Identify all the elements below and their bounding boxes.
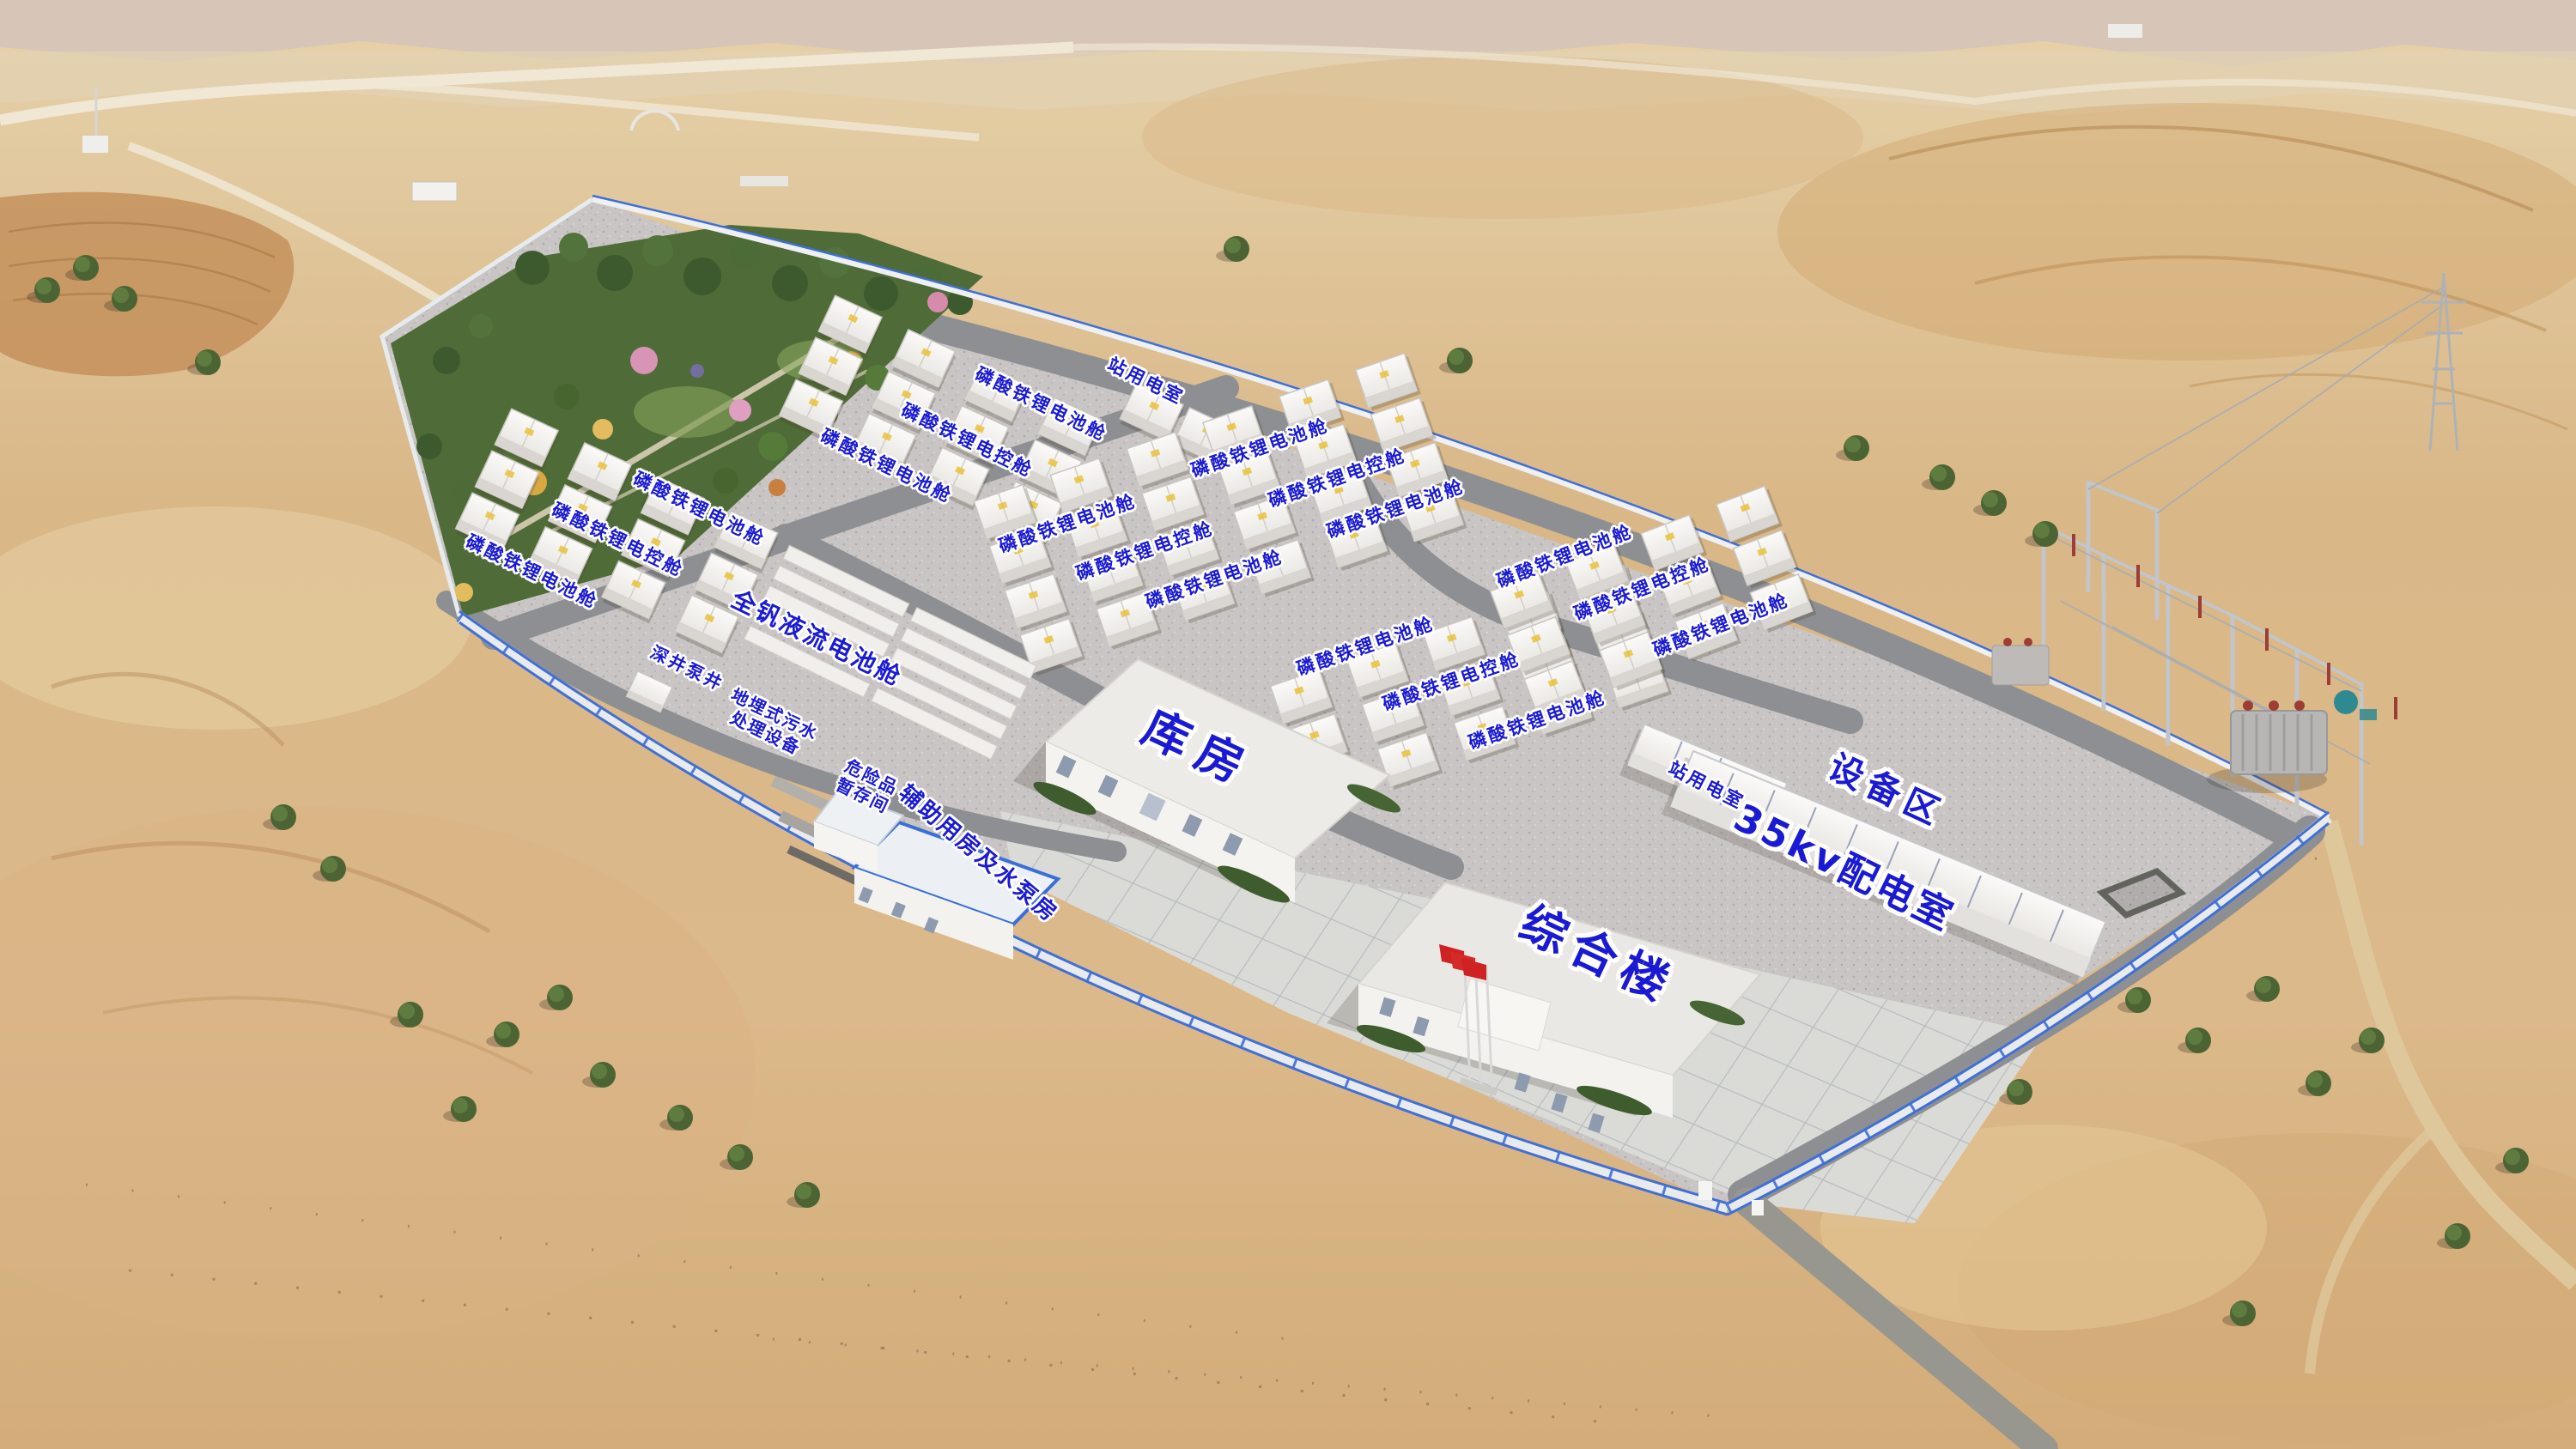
gate-house — [1698, 1181, 1712, 1200]
energy-storage-site-render: 站用电室 磷酸铁锂电池舱 磷酸铁锂电控舱 磷酸铁锂电池舱 磷酸铁锂电池舱 磷酸铁… — [0, 0, 2576, 1449]
distant-tower-building — [82, 136, 108, 153]
distant-building — [412, 182, 457, 201]
site-render-canvas — [0, 0, 2576, 1449]
